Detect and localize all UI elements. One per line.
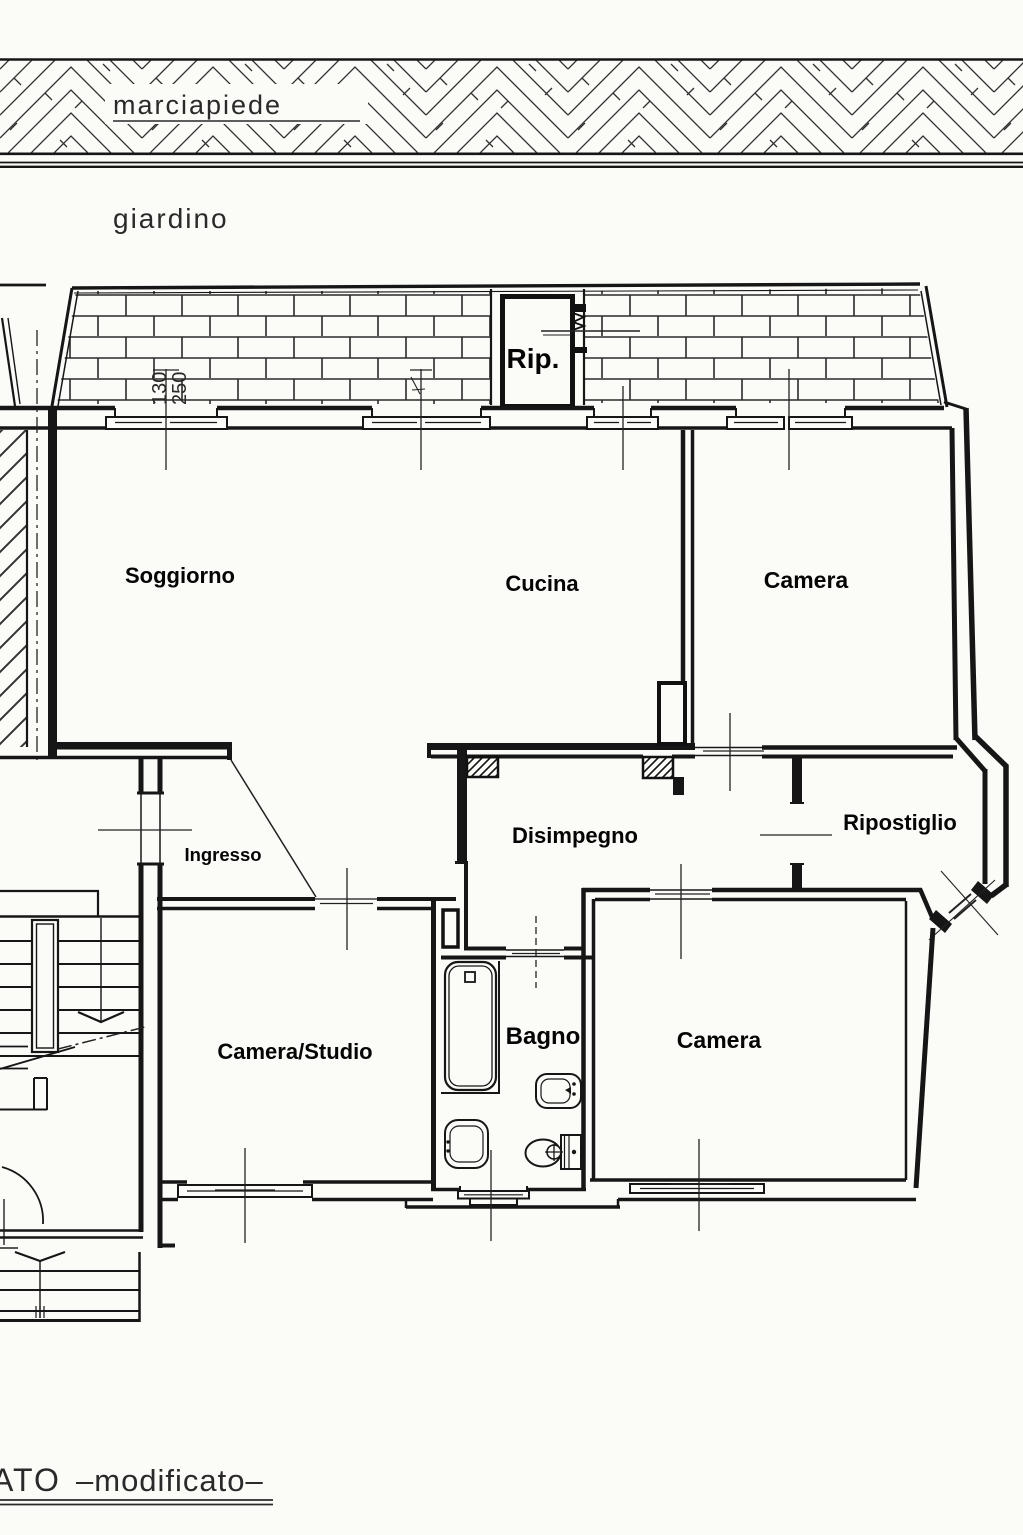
svg-text:130: 130 — [149, 372, 171, 405]
svg-text:giardino: giardino — [113, 203, 229, 234]
svg-text:Ingresso: Ingresso — [184, 844, 261, 865]
svg-text:Bagno: Bagno — [506, 1023, 581, 1050]
svg-text:Rip.: Rip. — [507, 343, 560, 374]
svg-text:250: 250 — [169, 372, 191, 405]
svg-text:Cucina: Cucina — [505, 571, 579, 596]
svg-text:marciapiede: marciapiede — [113, 90, 282, 120]
svg-text:Camera: Camera — [764, 567, 849, 593]
svg-text:ATO: ATO — [0, 1462, 61, 1498]
svg-text:Ripostiglio: Ripostiglio — [843, 810, 957, 835]
svg-text:Camera: Camera — [677, 1027, 762, 1053]
svg-text:Disimpegno: Disimpegno — [512, 823, 638, 848]
svg-text:Camera/Studio: Camera/Studio — [217, 1039, 372, 1064]
svg-text:Soggiorno: Soggiorno — [125, 563, 235, 588]
svg-text:–modificato–: –modificato– — [76, 1463, 264, 1498]
